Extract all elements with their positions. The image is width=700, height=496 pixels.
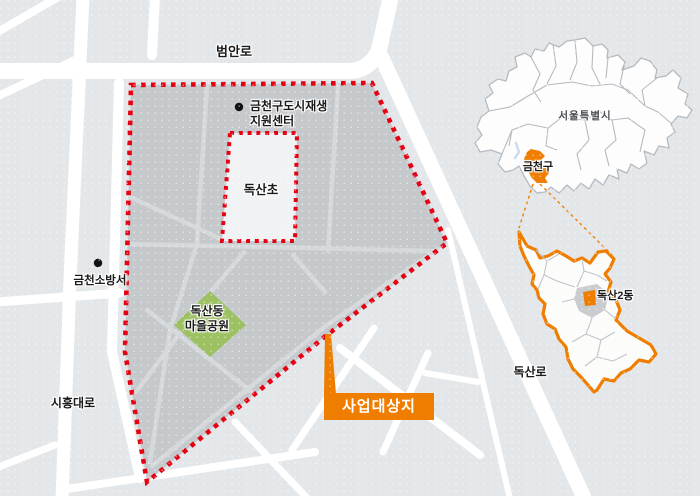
road-label-beomanro: 범안로 [216, 44, 252, 60]
poi-label-park: 독산동 마을공원 [185, 304, 229, 334]
map-canvas [0, 0, 700, 496]
road-label-doksanro: 독산로 [513, 365, 546, 380]
inset-label-geumcheongu: 금천구 [523, 161, 553, 175]
regen-center-line1: 금천구도시재생 [250, 99, 327, 114]
inset-label-doksan2dong: 독산2동 [597, 290, 633, 304]
texture-overlay [0, 0, 700, 496]
poi-label-regen-center: 금천구도시재생 지원센터 [250, 99, 327, 129]
regen-center-line2: 지원센터 [250, 114, 327, 129]
project-location-map: 범안로 금천구도시재생 지원센터 독산초 금천소방서 독산동 마을공원 시흥대로… [0, 0, 700, 496]
inset-label-seoul: 서울특별시 [558, 110, 611, 123]
park-line2: 마을공원 [185, 319, 229, 334]
project-site-callout: 사업대상지 [324, 393, 434, 420]
road-label-siheungdaero: 시흥대로 [51, 396, 95, 411]
poi-label-fire-station: 금천소방서 [74, 274, 127, 288]
park-line1: 독산동 [185, 304, 229, 319]
poi-label-school: 독산초 [244, 183, 279, 199]
